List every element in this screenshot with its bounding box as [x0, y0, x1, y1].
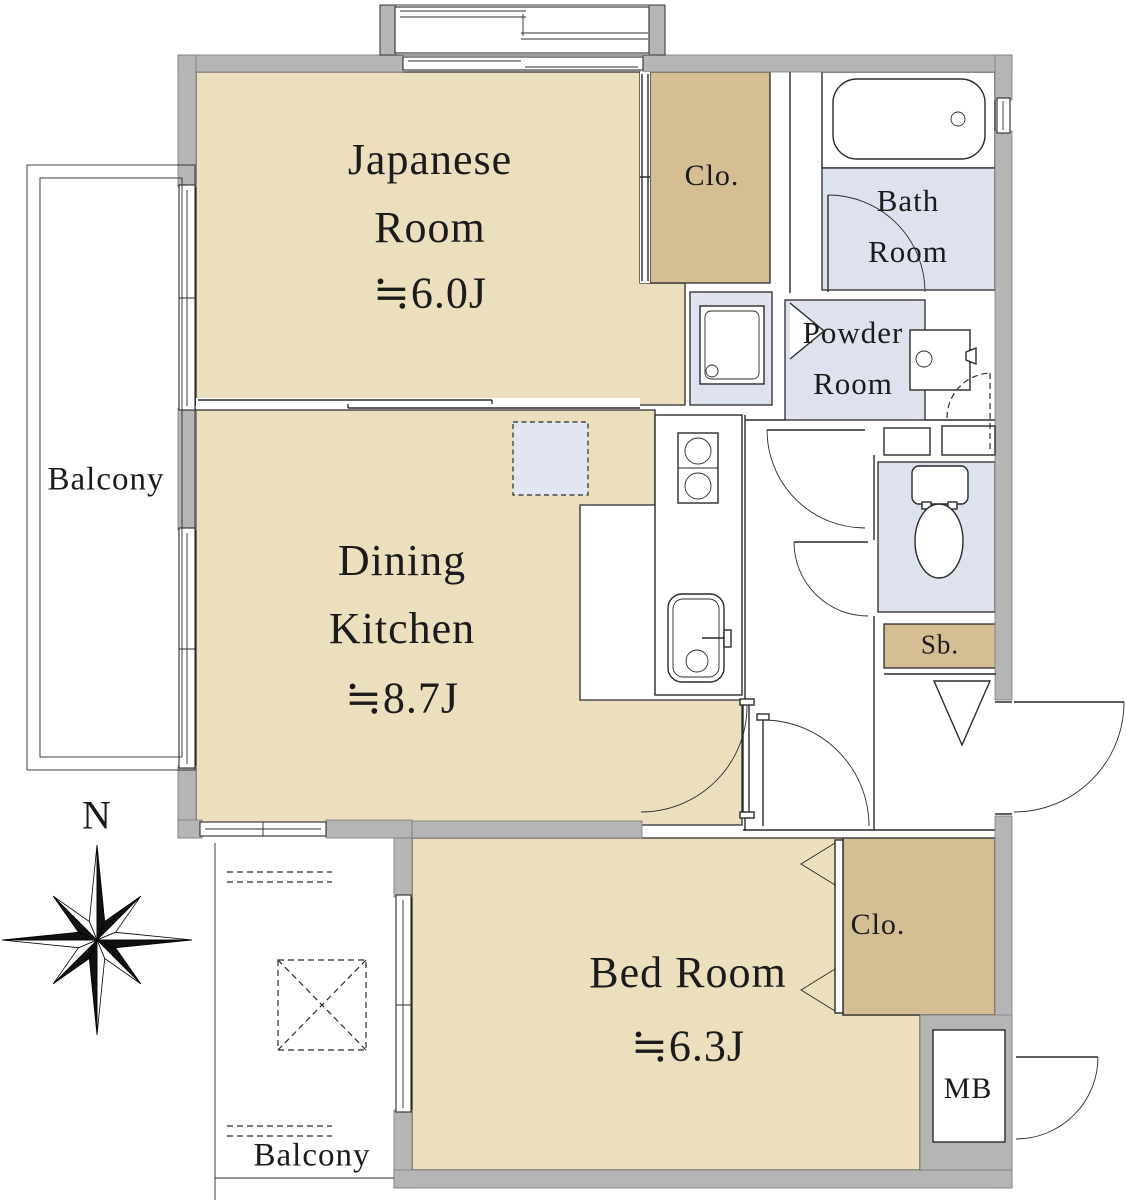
- bay-window-interior: [395, 7, 649, 53]
- toilet-tank: [912, 466, 968, 504]
- dining-kitchen-size: ≒8.7J: [345, 673, 459, 724]
- balcony-left-label: Balcony: [48, 462, 165, 499]
- window-top: [403, 57, 643, 70]
- shoe-box-label: Sb.: [921, 630, 959, 661]
- japanese-room-label: Japanese Room: [305, 126, 555, 262]
- bedroom-closet-track: [835, 840, 843, 1013]
- closet-top-label: Clo.: [685, 159, 740, 193]
- refrigerator-space: [513, 422, 588, 495]
- compass-rose: [2, 845, 192, 1035]
- entrance-step-mark: [934, 681, 990, 745]
- washing-machine-pan: [700, 306, 764, 384]
- bath-room-label: Bath Room: [838, 175, 978, 277]
- bed-room-size: ≒6.3J: [631, 1021, 745, 1072]
- entrance-door: [995, 702, 1124, 814]
- window-bedroom-left: [396, 895, 411, 1112]
- floor-plan: Japanese Room ≒6.0J Dining Kitchen ≒8.7J…: [0, 0, 1126, 1200]
- washroom-counter: [942, 426, 995, 455]
- meter-box-label: MB: [944, 1072, 993, 1106]
- closet-bedroom-label: Clo.: [851, 908, 906, 942]
- compass-north-label: N: [82, 792, 112, 839]
- toilet-bowl: [915, 504, 963, 578]
- bathtub: [833, 79, 985, 159]
- powder-room-label: Powder Room: [778, 307, 928, 409]
- window-bath: [997, 98, 1010, 133]
- toilet-cabinet: [884, 428, 930, 455]
- japanese-room-size: ≒6.0J: [373, 268, 487, 319]
- balcony-bottom-label: Balcony: [254, 1138, 371, 1175]
- dining-kitchen-label: Dining Kitchen: [292, 527, 512, 663]
- bed-room-label: Bed Room: [589, 939, 786, 1007]
